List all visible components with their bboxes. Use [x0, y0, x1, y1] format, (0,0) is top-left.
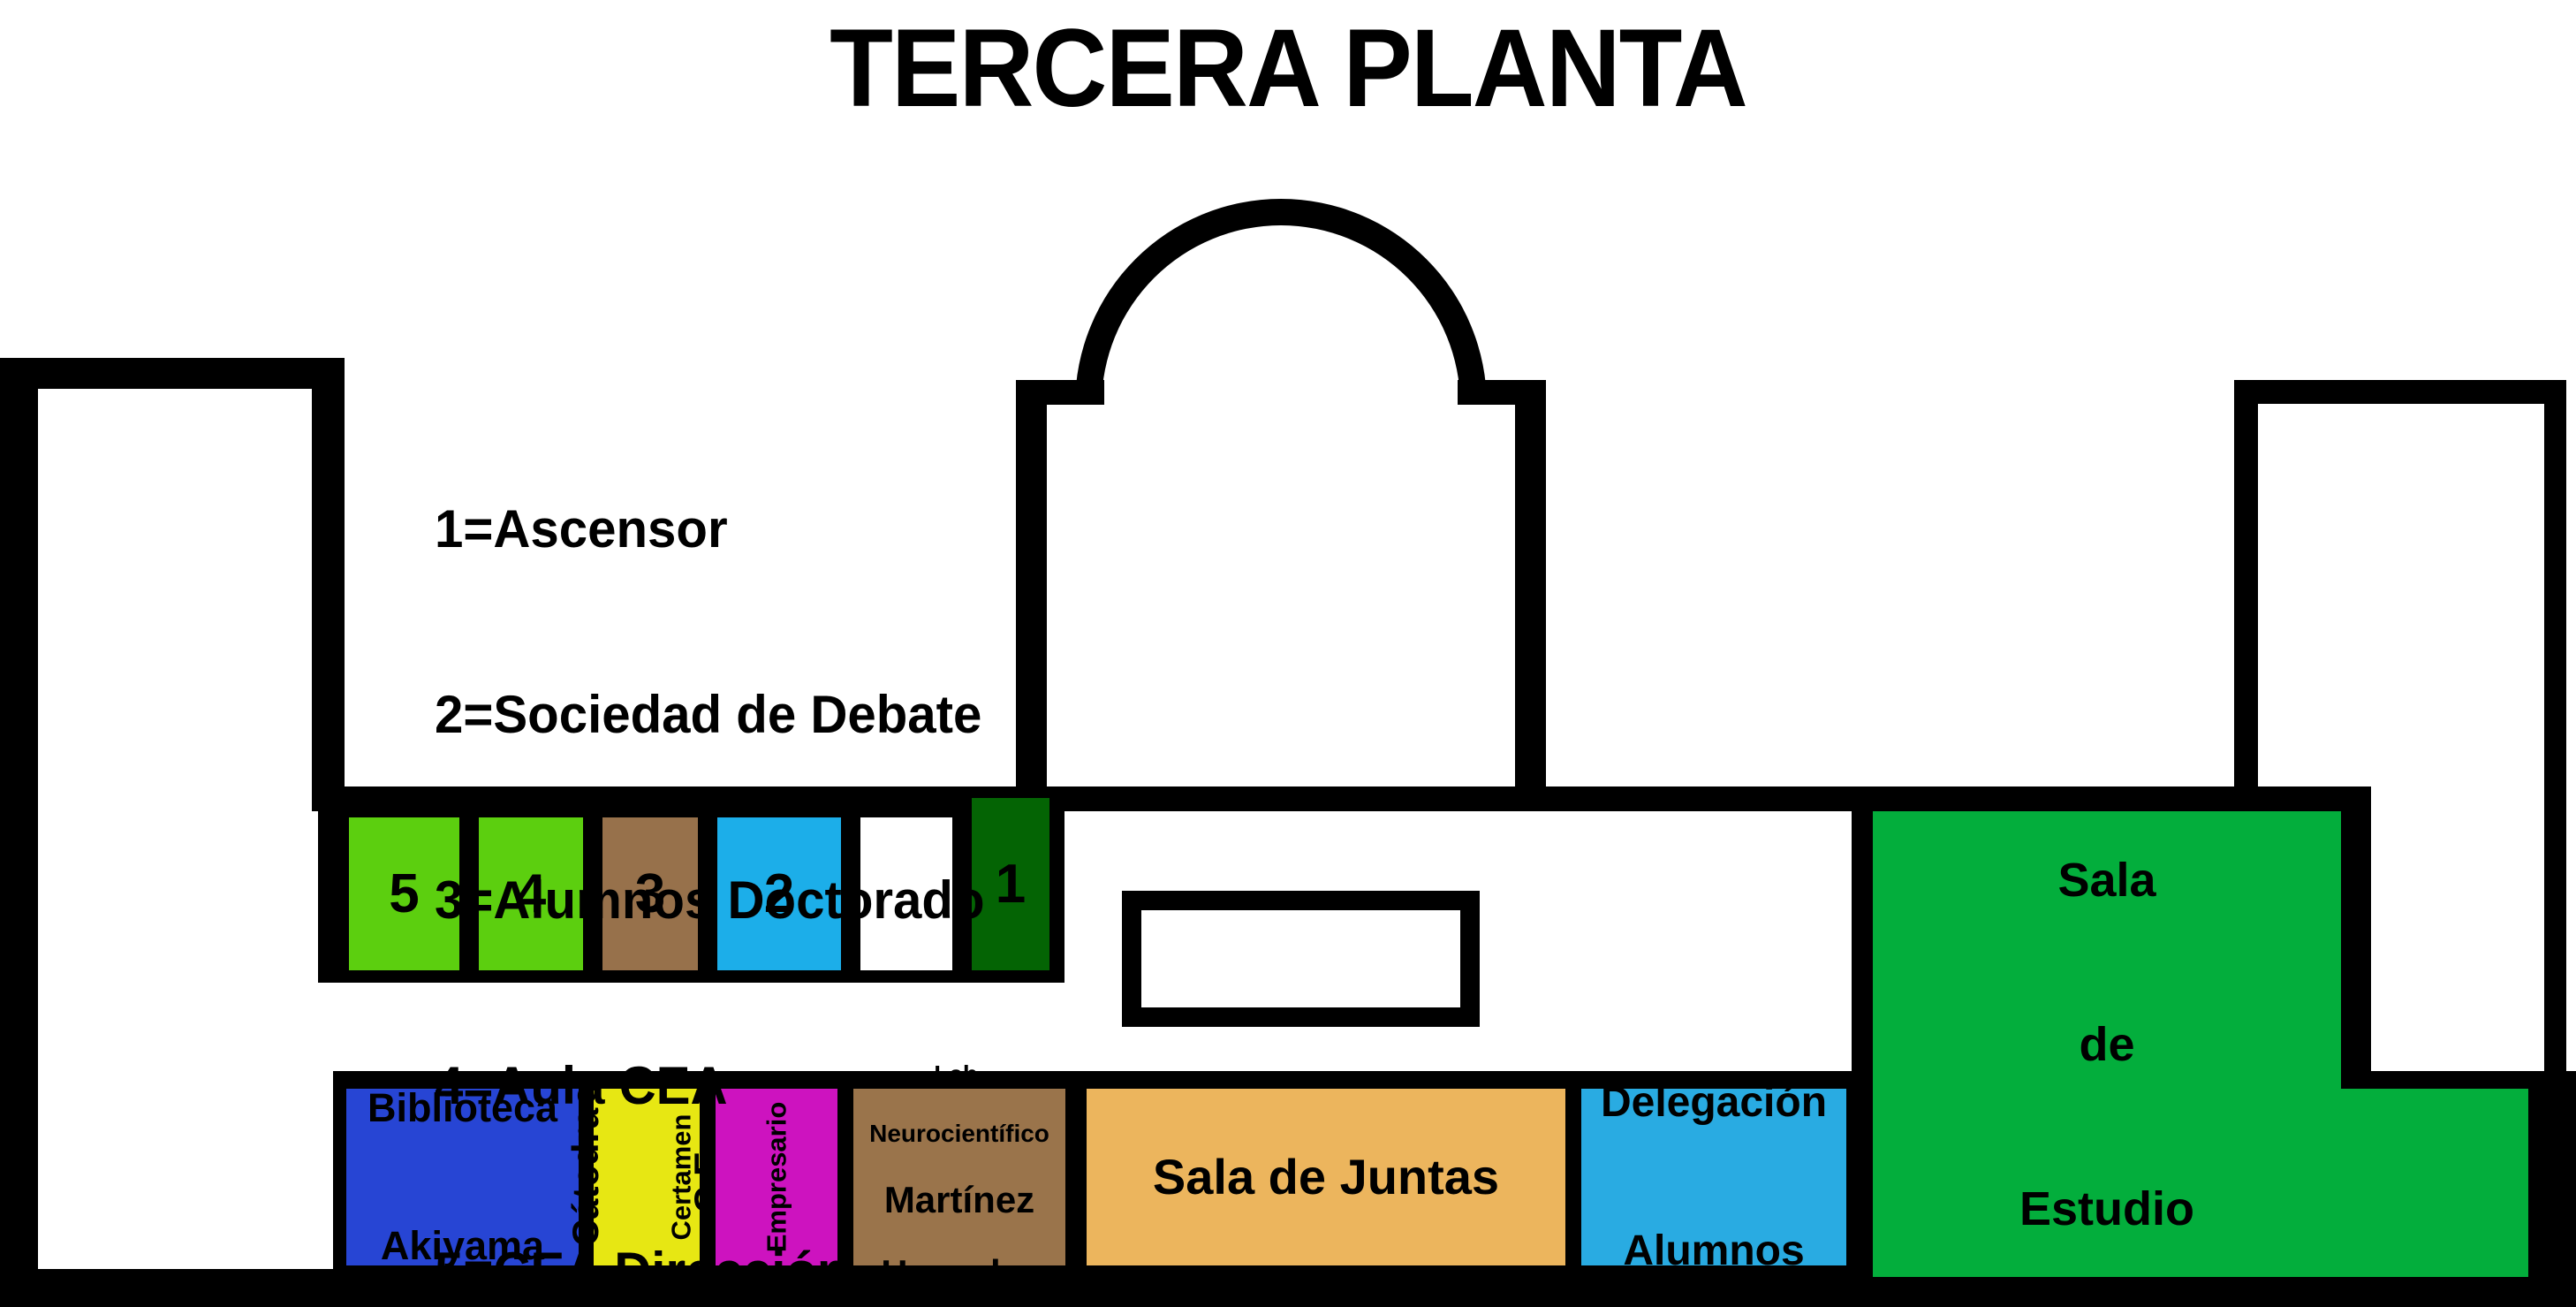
desk-interior	[1141, 910, 1460, 1007]
legend-item-1: 1=Ascensor	[435, 498, 984, 560]
wall-right-filler	[2528, 1071, 2576, 1307]
legend-item-4: 4=Aula CEA	[435, 1055, 984, 1117]
delegacion-label: Delegación Alumnos	[1601, 979, 1827, 1307]
room-sala-estudio-extension	[2341, 1089, 2528, 1277]
wall-left-outer	[0, 358, 38, 1307]
wall-right-wing-left	[2234, 380, 2258, 811]
legend-item-2: 2=Sociedad de Debate	[435, 684, 984, 746]
wall-arch-right	[1515, 380, 1546, 811]
sala-juntas-label: Sala de Juntas	[1153, 1150, 1499, 1204]
room-number-5: 5	[389, 862, 419, 925]
room-number-1: 1	[996, 853, 1026, 916]
wall-arch-left	[1016, 380, 1047, 811]
wall-left-wing-top	[0, 358, 345, 389]
room-sala-estudio-main: Sala de Estudio	[1873, 811, 2341, 1277]
arch-hall-interior	[1047, 405, 1515, 786]
room-delegacion-alumnos: Delegación Alumnos	[1581, 1089, 1846, 1265]
wall-left-wing-right	[312, 358, 345, 811]
wall-right-wing-top	[2234, 380, 2566, 404]
room-sala-juntas: Sala de Juntas	[1087, 1089, 1565, 1265]
sala-estudio-label: Sala de Estudio	[2019, 743, 2194, 1307]
legend-item-5: 5=CEA Dirección	[435, 1241, 984, 1303]
legend-item-3: 3=Alumnos Doctorado	[435, 870, 984, 931]
wall-estudio-right	[2341, 811, 2371, 1071]
page-title: TERCERA PLANTA	[77, 5, 2498, 132]
wall-right-room-bottom	[2341, 1071, 2544, 1089]
wall-estudio-left	[1852, 786, 1873, 1277]
floor-plan: 5 4 3 2 1 Sala de Estudio Biblioteca Aki…	[0, 0, 2576, 1307]
legend: 1=Ascensor 2=Sociedad de Debate 3=Alumno…	[435, 375, 984, 1307]
